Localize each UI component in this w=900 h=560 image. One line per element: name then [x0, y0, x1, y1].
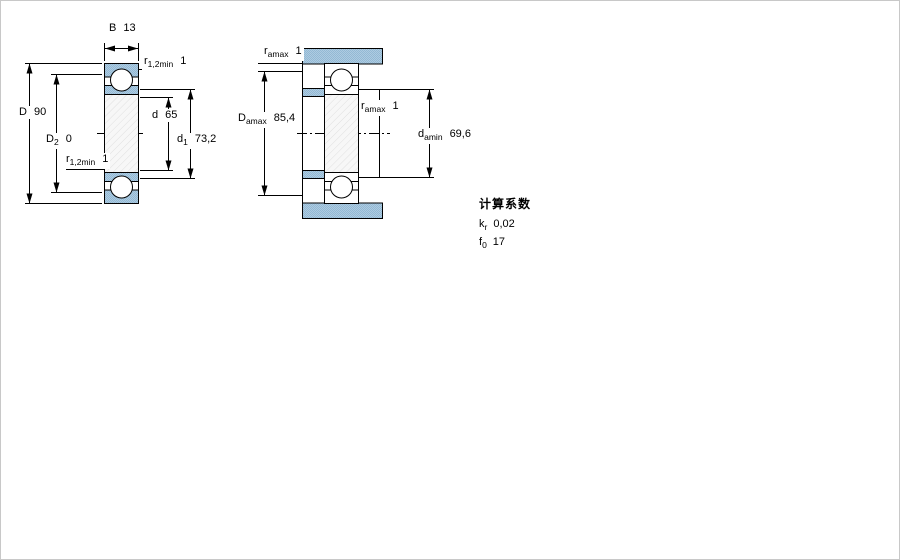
dim-label-ra-max-top: ramax1 [262, 45, 304, 61]
drawing-linework [1, 1, 900, 560]
dim-value: 0 [66, 133, 72, 145]
dim-value: 69,6 [450, 128, 471, 140]
bearing-dimension-drawing: B13 r1,2min1 D90 D20 r1,2min1 d65 d173,2… [0, 0, 900, 560]
shaft-shoulder-top [303, 89, 325, 97]
dim-label-Da-max: Damax85,4 [236, 112, 297, 128]
factor-f0: f017 [479, 236, 531, 250]
dim-label-r12min-top: r1,2min1 [142, 55, 188, 71]
dim-value: 1 [392, 100, 398, 112]
dim-value: 1 [180, 55, 186, 67]
dim-subscript: amax [268, 49, 289, 59]
right-mounting-figure [258, 48, 434, 219]
dim-value: 85,4 [274, 112, 295, 124]
dim-label-D2: D20 [44, 133, 74, 149]
dim-subscript: amax [246, 116, 267, 126]
dim-value: 13 [123, 22, 135, 34]
dim-subscript: 1,2min [148, 59, 174, 69]
dim-label-da-min: damin69,6 [416, 128, 473, 144]
dim-value: 1 [295, 45, 301, 57]
dim-subscript: 1,2min [70, 157, 96, 167]
dim-symbol: D [19, 106, 27, 118]
dim-label-bore-d: d65 [150, 109, 179, 122]
dim-subscript: amax [365, 104, 386, 114]
bearing-section-left [105, 64, 139, 204]
dim-label-outer-diameter-D: D90 [17, 106, 48, 119]
factor-subscript: 0 [482, 240, 487, 250]
dim-value: 73,2 [195, 133, 216, 145]
dim-symbol: B [109, 22, 116, 34]
ball-top [331, 69, 353, 91]
bearing-section-right [325, 64, 359, 204]
dim-subscript: 2 [54, 137, 59, 147]
dim-symbol: D [46, 133, 54, 145]
factor-subscript: r [485, 222, 488, 232]
dim-symbol: d [152, 109, 158, 121]
factor-value: 17 [493, 236, 505, 248]
calculation-factors-title: 计算系数 [479, 195, 531, 212]
factor-value: 0,02 [493, 218, 514, 230]
dim-label-ra-max-mid: ramax1 [359, 100, 401, 116]
factor-kr: kr0,02 [479, 218, 531, 232]
housing-block-bottom [303, 203, 383, 219]
ball-bottom [331, 176, 353, 198]
ball-bottom [111, 176, 133, 198]
ball-top [111, 69, 133, 91]
dim-value: 90 [34, 106, 46, 118]
dim-subscript: amin [424, 132, 442, 142]
calculation-factors-block: 计算系数 kr0,02 f017 [479, 195, 531, 254]
dim-label-r12min-bottom: r1,2min1 [64, 153, 110, 169]
dim-label-d1: d173,2 [175, 133, 218, 149]
dim-value: 1 [102, 153, 108, 165]
dim-label-width-B: B13 [107, 22, 138, 35]
shaft-shoulder-bottom [303, 171, 325, 179]
housing-block-top [303, 49, 383, 65]
dim-subscript: 1 [183, 137, 188, 147]
dim-symbol: D [238, 112, 246, 124]
dim-value: 65 [165, 109, 177, 121]
